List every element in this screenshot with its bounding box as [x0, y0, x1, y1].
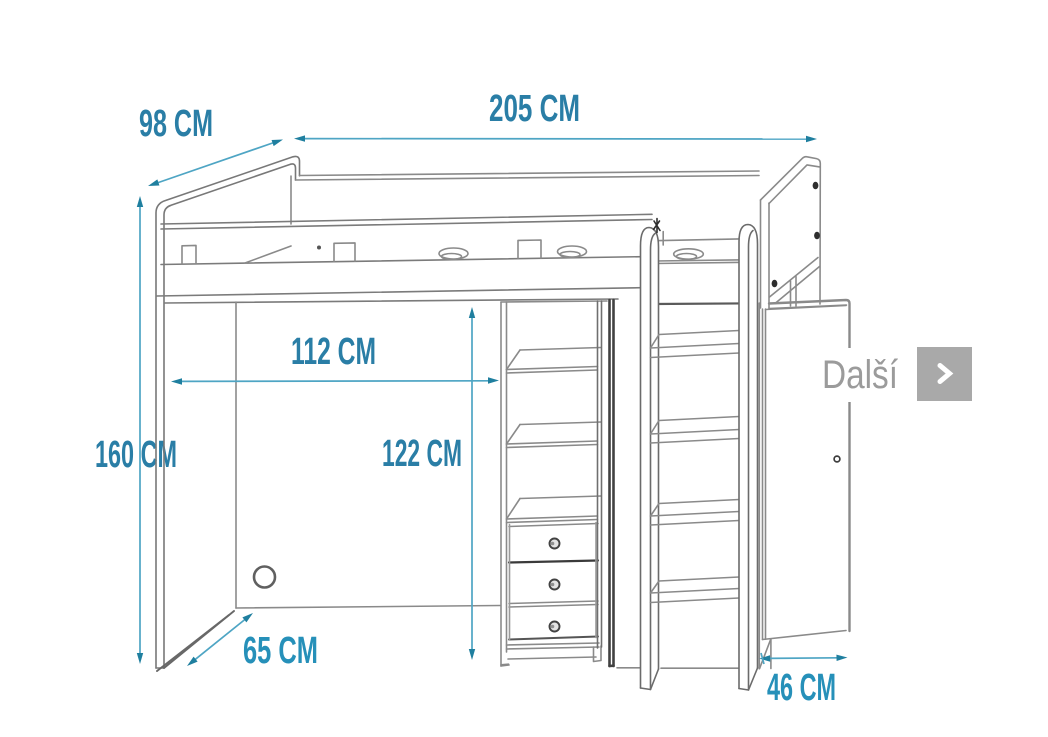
svg-text:98 CM: 98 CM [139, 103, 213, 145]
svg-text:46 CM: 46 CM [767, 667, 836, 709]
svg-text:112 CM: 112 CM [291, 331, 376, 373]
svg-text:65 CM: 65 CM [243, 630, 318, 672]
svg-text:122 CM: 122 CM [382, 433, 462, 475]
svg-text:Další: Další [822, 353, 898, 397]
svg-text:205 CM: 205 CM [489, 88, 580, 130]
